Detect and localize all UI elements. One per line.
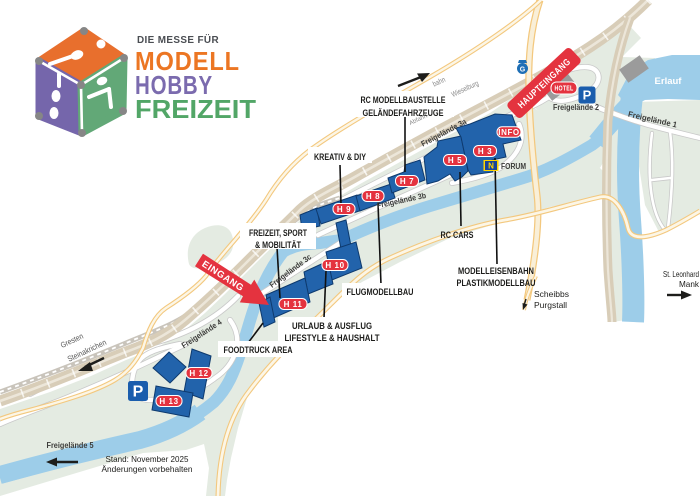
- svg-text:N: N: [488, 162, 494, 171]
- svg-text:H 3: H 3: [478, 147, 492, 156]
- svg-text:RC CARS: RC CARS: [441, 230, 474, 240]
- svg-text:Purgstall: Purgstall: [534, 300, 567, 310]
- svg-text:FOODTRUCK AREA: FOODTRUCK AREA: [224, 345, 293, 355]
- svg-text:Scheibbs: Scheibbs: [534, 289, 569, 299]
- svg-text:FREIZEIT, SPORT: FREIZEIT, SPORT: [249, 228, 307, 238]
- svg-text:Freigelände 2: Freigelände 2: [553, 103, 599, 112]
- svg-text:P: P: [583, 88, 592, 103]
- svg-text:RC MODELLBAUSTELLE: RC MODELLBAUSTELLE: [361, 95, 446, 105]
- svg-text:H 5: H 5: [448, 156, 462, 165]
- svg-text:H 11: H 11: [284, 300, 303, 309]
- svg-text:HOTEL: HOTEL: [555, 86, 574, 93]
- svg-text:Mank: Mank: [679, 279, 700, 289]
- svg-text:H 8: H 8: [366, 192, 380, 201]
- svg-text:GELÄNDEFAHRZEUGE: GELÄNDEFAHRZEUGE: [363, 108, 444, 118]
- svg-text:Freigelände 5: Freigelände 5: [47, 441, 94, 450]
- svg-text:INFO: INFO: [498, 128, 520, 137]
- svg-text:FORUM: FORUM: [501, 162, 526, 171]
- svg-text:H 12: H 12: [189, 369, 208, 378]
- svg-text:FLUGMODELLBAU: FLUGMODELLBAU: [347, 287, 414, 297]
- svg-text:& MOBILITÄT: & MOBILITÄT: [255, 240, 301, 250]
- svg-text:KREATIV & DIY: KREATIV & DIY: [314, 152, 366, 162]
- svg-text:DIE MESSE FÜR: DIE MESSE FÜR: [137, 33, 219, 46]
- svg-text:H 9: H 9: [337, 205, 351, 214]
- svg-text:H 7: H 7: [400, 177, 414, 186]
- svg-text:H 10: H 10: [325, 261, 344, 270]
- svg-text:St. Leonhard: St. Leonhard: [663, 269, 699, 279]
- svg-text:URLAUB & AUSFLUG: URLAUB & AUSFLUG: [292, 321, 372, 331]
- svg-text:FREIZEIT: FREIZEIT: [135, 94, 256, 124]
- svg-text:Änderungen vorbehalten: Änderungen vorbehalten: [102, 464, 193, 474]
- svg-text:Erlauf: Erlauf: [655, 76, 683, 87]
- svg-text:G: G: [520, 67, 526, 74]
- svg-text:Stand: November 2025: Stand: November 2025: [106, 454, 189, 464]
- svg-text:LIFESTYLE & HAUSHALT: LIFESTYLE & HAUSHALT: [285, 333, 380, 343]
- svg-text:H 13: H 13: [159, 397, 178, 406]
- svg-text:PLASTIKMODELLBAU: PLASTIKMODELLBAU: [457, 278, 536, 288]
- svg-text:P: P: [133, 384, 144, 401]
- svg-text:MODELLEISENBAHN: MODELLEISENBAHN: [458, 266, 534, 276]
